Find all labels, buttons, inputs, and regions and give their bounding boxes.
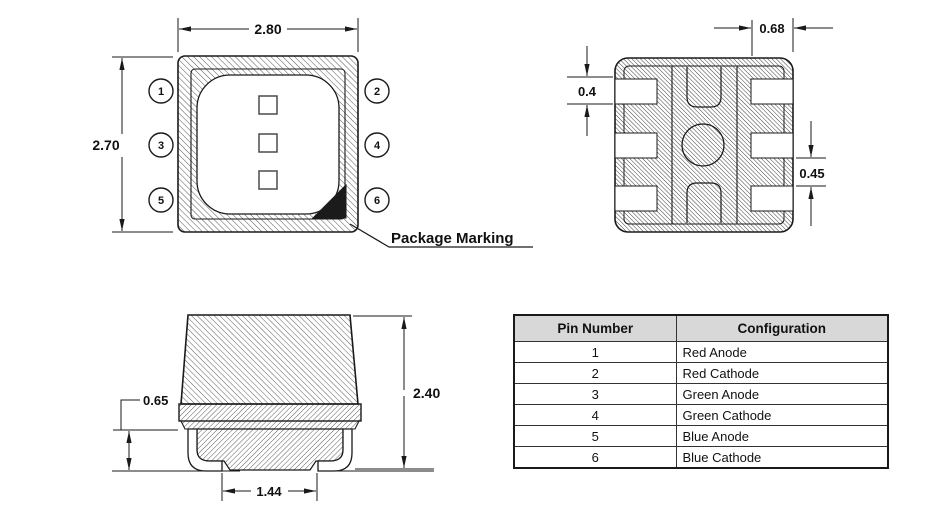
side-view-substrate [179, 404, 361, 421]
pin-number-header: Pin Number [514, 315, 676, 342]
pin-5-label: 5 [158, 195, 164, 207]
dim-standoff [113, 400, 178, 470]
pin-configuration-table: Pin Number Configuration 1 Red Anode 2 R… [513, 314, 889, 469]
pin-3-label: 3 [158, 140, 164, 152]
table-row: 5 Blue Anode [514, 426, 888, 447]
pin-1-label: 1 [158, 86, 164, 98]
top-view: 1 3 5 2 4 6 2.80 [92, 18, 533, 247]
led-package-drawing-page: 1 3 5 2 4 6 2.80 [0, 0, 926, 532]
table-row: 1 Red Anode [514, 342, 888, 363]
dim-pad-height-label: 0.4 [578, 84, 597, 99]
configuration-cell: Green Cathode [676, 405, 888, 426]
pin-number-cell: 4 [514, 405, 676, 426]
pin-number-cell: 1 [514, 342, 676, 363]
dim-top-width-label: 2.80 [254, 21, 281, 37]
side-view-lens-dome [181, 315, 358, 404]
table-row: 6 Blue Cathode [514, 447, 888, 469]
table-row: 2 Red Cathode [514, 363, 888, 384]
led-chip-3 [259, 171, 277, 189]
dim-lead-span-label: 1.44 [256, 484, 282, 499]
dim-pad-length-label: 0.68 [759, 21, 784, 36]
configuration-cell: Blue Anode [676, 426, 888, 447]
pin-number-cell: 3 [514, 384, 676, 405]
pin-4-label: 4 [374, 140, 381, 152]
table-header-row: Pin Number Configuration [514, 315, 888, 342]
led-chip-2 [259, 134, 277, 152]
configuration-cell: Red Anode [676, 342, 888, 363]
configuration-cell: Red Cathode [676, 363, 888, 384]
dim-standoff-label: 0.65 [143, 393, 168, 408]
configuration-cell: Green Anode [676, 384, 888, 405]
pin-6-label: 6 [374, 195, 380, 207]
pin-marker-1: 1 [149, 79, 173, 103]
table-row: 4 Green Cathode [514, 405, 888, 426]
pin-marker-4: 4 [365, 133, 389, 157]
package-marking-label: Package Marking [391, 230, 514, 247]
dim-top-height-label: 2.70 [92, 137, 119, 153]
configuration-header: Configuration [676, 315, 888, 342]
bottom-view: 0.68 0.4 0.45 [567, 18, 833, 232]
side-view-substrate-strip [181, 421, 359, 429]
configuration-cell: Blue Cathode [676, 447, 888, 469]
dim-total-height-label: 2.40 [413, 385, 440, 401]
led-chip-1 [259, 96, 277, 114]
dim-pad-gap-label: 0.45 [799, 166, 824, 181]
pin-marker-5: 5 [149, 188, 173, 212]
pin-2-label: 2 [374, 86, 380, 98]
side-view: 0.65 2.40 1.44 [112, 315, 440, 501]
pin-marker-2: 2 [365, 79, 389, 103]
pin-number-cell: 5 [514, 426, 676, 447]
pin-marker-3: 3 [149, 133, 173, 157]
table-row: 3 Green Anode [514, 384, 888, 405]
pin-number-cell: 2 [514, 363, 676, 384]
pin-marker-6: 6 [365, 188, 389, 212]
pin-number-cell: 6 [514, 447, 676, 469]
